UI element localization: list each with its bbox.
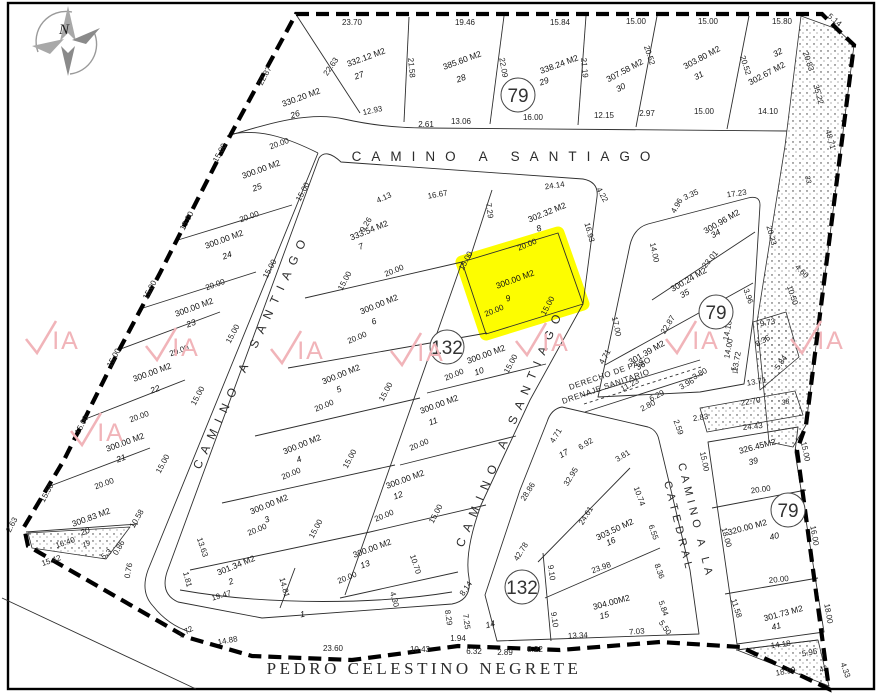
lot-area-label: 300.24 M2 [669,265,709,294]
dimension-label: 20.00 [383,263,405,279]
lot-number-label: 24 [220,249,234,262]
lot-area-label: 302.32 M2 [526,200,567,224]
lot-area-label: 332.12 M2 [345,46,386,69]
dimension-label: 2.59 [671,418,685,436]
dimension-label: 19.47 [211,589,233,603]
dimension-label: 15.00 [626,17,647,26]
dimension-label: 24.43 [742,421,763,432]
compass-n-label: N [58,22,70,38]
dimension-label: 24.14 [544,180,566,192]
dimension-label: 20.52 [642,44,657,66]
lot-number-label: 39 [747,455,759,467]
lot-number-label: 29 [537,75,551,88]
lot-number-label: 41 [770,620,782,632]
lot-area-label: 300.96 M2 [702,207,742,236]
dimension-label: 20.52 [738,54,753,76]
dimension-label: 15.00 [141,278,159,300]
lot-area-label: 300.00 M2 [203,228,244,251]
dimension-label: 15.00 [341,447,359,469]
dimension-label: 15.00 [224,322,242,344]
dimension-label: 15.80 [772,17,793,26]
dimension-label: 20.00 [280,466,302,482]
dimension-label: 13.34 [568,630,589,640]
dimension-label: 17.00 [610,316,623,338]
lot-number-label: 2 [226,576,235,588]
dimension-label: 11.58 [729,598,744,620]
watermark-text: IA [417,339,445,367]
dimension-label: 20.00 [373,508,395,524]
dimension-label: 20.00 [336,570,358,586]
dimension-label: 4.13 [375,190,393,205]
lot-area-label: 300.00 M2 [351,537,392,560]
dimension-label: 20.00 [750,484,772,496]
dimension-label: 15.00 [698,451,711,473]
dimension-label: 15.00 [427,502,445,524]
lot-number-label: 37 [729,366,739,377]
lot-area-label: 300.00 M2 [358,292,399,316]
lot-number-label: 23 [184,317,198,330]
dimension-label: 13.06 [451,117,472,126]
lot-area-label: 303.80 M2 [682,43,722,71]
dimension-label: 20.00 [268,136,290,151]
dimension-label: 8.22 [527,645,543,654]
dimension-label: 9.10 [549,611,560,628]
watermark-text: IA [542,329,570,357]
dimension-label: 20.00 [93,476,115,491]
watermark-text: IA [297,337,325,365]
lot-area-label: 307.58 M2 [605,56,645,84]
dimension-label: 10.70 [408,553,423,575]
lot-number-label: 13 [359,558,372,571]
dimension-label: 24.61 [577,504,596,526]
lot-number-label: 17 [557,447,570,461]
dimension-label: 14.10 [758,107,779,116]
lot-area-label: 301.73 M2 [763,603,805,623]
watermark-text: IA [817,327,845,355]
dimension-label: 8.29 [443,609,454,626]
dimension-label: 23.98 [590,560,612,575]
dimension-label: 12.15 [594,111,615,120]
dimension-label: 21.19 [579,57,590,78]
street-name-label: CAMINO A SANTIAGO [352,149,661,164]
lot-area-label: 300.00 M2 [465,343,506,366]
lot-area-label: 338.24 M2 [538,53,579,76]
dimension-label: 8.14 [458,579,475,597]
dimension-label: 15.00 [698,17,719,26]
dimension-label: 20.00 [204,277,226,292]
dimension-label: 15.84 [550,18,571,27]
watermark-text: IA [52,327,80,355]
dimension-label: 15.00 [154,452,172,474]
dimension-label: 15.00 [694,107,715,116]
dimension-label: 32.95 [562,465,581,487]
dimension-label: 3.80 [691,366,709,382]
watermark-text: IA [97,419,125,447]
lot-number-label: 15 [598,609,610,621]
dimension-label: 42.78 [512,540,531,562]
dimension-label: 4.71 [597,347,613,365]
lot-number-label: 25 [250,181,264,194]
block-number-label: 79 [705,303,726,324]
dimension-label: 15.00 [377,380,395,402]
dimension-label: 16.93 [582,222,596,244]
street-name-label: PEDRO CELESTINO NEGRETE [267,659,582,678]
dimension-label: 4.30 [388,591,401,609]
dimension-label: 5.50 [657,619,674,637]
dimension-label: 20.00 [313,398,335,414]
dimension-label: 7.03 [629,626,646,636]
compass-rose: N [32,6,100,76]
dimension-label: 7.29 [484,202,495,219]
dimension-label: 6.92 [577,436,595,452]
lot-number-label: 27 [352,69,366,82]
dimension-label: 20.00 [246,522,268,538]
lot-number-label: 14 [484,618,496,630]
dimension-label: 4.33 [838,661,852,679]
dimension-label: 19.46 [455,18,476,27]
dimension-label: 20.00 [346,330,368,346]
lot-number-label: 11 [427,415,439,428]
dimension-label: 7.25 [461,613,472,630]
dimension-label: 4.96 [669,196,685,214]
block-number-label: 79 [507,86,528,107]
lot-number-label: 40 [768,530,780,542]
dimension-label: 15.00 [189,384,207,406]
dimension-label: 13.63 [195,536,210,558]
dimension-label: 20.00 [128,409,150,424]
lot-number-label: 6 [370,316,378,327]
lot-number-label: 4 [295,454,303,465]
dimension-label: 23.60 [323,644,344,653]
street-name-label: CAMINO A SANTIAGO [190,230,312,471]
lot-number-label: 21 [114,452,128,465]
watermark-text: IA [172,334,200,362]
dimension-label: 28.86 [519,480,538,502]
dimension-label: 17.23 [726,188,748,200]
dimension-label: 18.99 [775,665,797,677]
dimension-label: 20.00 [408,437,430,453]
dimension-label: 8.36 [652,562,666,580]
dimension-label: 6.55 [646,523,660,541]
lot-number-label: 30 [614,81,627,94]
dimension-label: 0.76 [123,562,135,579]
dimension-label: 12.93 [362,104,384,117]
lot-area-label: 300.00 M2 [240,158,281,181]
dimension-label: 14.00 [648,242,661,264]
lot-number-label: 28 [454,72,468,85]
dimension-label: 10.58 [128,507,146,529]
dimension-label: 2.97 [639,109,655,118]
dimension-label: 15.00 [307,517,325,539]
dimension-label: 2.89 [497,648,513,657]
lot-number-label: 31 [692,69,705,82]
plat-map-page: N [0,0,882,698]
dimension-label: 1.81 [181,571,194,589]
dimension-label: 14.88 [217,634,239,646]
dimension-label: 5.84 [656,599,670,617]
dimension-label: 2.61 [418,120,434,129]
dimension-label: 15.00 [178,209,196,231]
dimension-label: 15.00 [336,269,354,291]
dimension-label: 21.58 [406,57,417,78]
dimension-label: 10.43 [410,645,431,654]
dimension-label: 6.32 [466,647,482,656]
dimension-label: 22.87 [256,64,274,86]
block-number-label: 79 [777,501,798,522]
lot-area-label: 300.83 M2 [70,506,111,529]
dimension-label: 3.96 [741,287,755,305]
lot-area-label: 385.60 M2 [441,49,482,72]
lot-area-label: 330.20 M2 [280,86,321,109]
lot-number-label: 7 [357,241,365,252]
lot-number-label: 8 [535,223,543,234]
plat-map: N [0,0,882,698]
dimension-label: 22.09 [497,57,509,79]
dimension-label: 15.00 [799,441,812,463]
dimension-label: 14.81 [277,577,291,599]
lot-area-label: 300.00 M2 [320,362,361,386]
lot-area-label: 300.00 M2 [173,296,214,319]
dimension-label: 22.87 [659,313,678,335]
watermark-text: IA [692,327,720,355]
dimension-label: 16.00 [523,113,544,122]
dimension-label: 9.10 [546,564,557,581]
lot-area-label: 304.00M2 [592,592,631,612]
lot-area-label: 300.00 M2 [418,393,459,416]
dimension-label: 3.81 [614,448,632,464]
lot-area-label: 320.00 M2 [727,517,769,537]
dimension-label: 20.00 [443,367,465,383]
lot-area-label: 300.00 M2 [281,432,322,456]
lot-area-label: 326.45M2 [738,436,777,456]
dimension-label: 15.00 [261,257,279,279]
dimension-label: 4.71 [548,426,564,444]
dimension-label: 16.67 [427,188,449,200]
dimension-label: 2.63 [4,515,20,533]
lot-number-label: 1 [299,609,306,620]
lot-area-label: 300.00 M2 [131,361,172,384]
dimension-label: 1.94 [450,634,466,643]
lot-number-label: 32 [771,46,784,59]
lot-number-label: 10 [473,365,486,378]
dimension-label: 20.00 [238,209,260,224]
dimension-label: 3.35 [682,187,700,202]
block-number-label: 132 [506,578,538,599]
lot-area-label: 303.50 M2 [594,516,635,542]
dimension-label: 18.00 [822,603,834,625]
lot-area-label: 300.00 M2 [384,468,425,491]
lot-area-label: 301.34 M2 [215,553,256,577]
lot-number-label: 12 [392,489,405,502]
lot-number-label: 26 [288,108,302,121]
lot-number-label: 5 [335,384,343,395]
dimension-label: 23.70 [342,18,363,27]
dimension-label: 10.74 [632,485,647,507]
